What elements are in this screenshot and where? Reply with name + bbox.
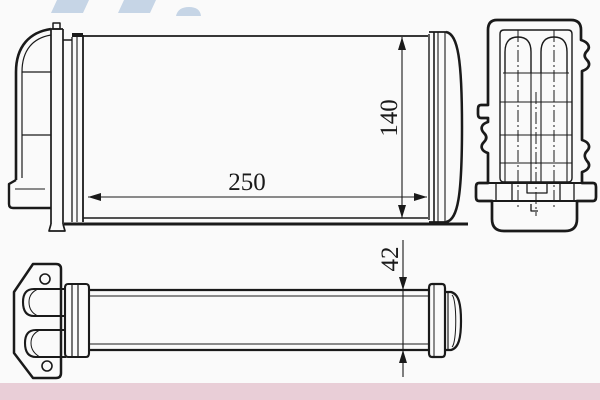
pipe-stub-inner-line (31, 330, 40, 357)
dimension-arrow (414, 193, 427, 201)
pipe-end-ring (429, 284, 445, 357)
end-view-tab-mark (531, 204, 538, 211)
tank-flange-strip (51, 29, 63, 224)
pipe-stub-inner-line (29, 289, 38, 316)
left-tank (9, 23, 83, 231)
inlet-flange-plate (14, 264, 61, 378)
pipe-collar (65, 284, 89, 357)
left-tank-foot (9, 180, 51, 208)
tank-end-view (476, 20, 596, 231)
left-tank-outline (16, 29, 51, 180)
pipe-end-cap-inner-curve (452, 295, 456, 347)
end-cap-curve (446, 32, 462, 222)
end-view-flange-notch (527, 183, 547, 193)
pipe-collar-line (72, 284, 78, 357)
dimension-42-label: 42 (377, 247, 404, 272)
right-end-cap (429, 32, 462, 222)
left-tank-inner-line (22, 35, 51, 178)
technical-drawing-page: 140 250 (0, 0, 600, 400)
dimension-42: 42 (377, 240, 407, 377)
core-body (64, 36, 468, 224)
flange-bolt-hole (40, 274, 50, 284)
footer-accent-bar (0, 383, 600, 400)
dimension-140: 140 (376, 37, 406, 218)
dimension-arrow (398, 205, 406, 218)
dimension-arrow (399, 277, 407, 290)
tank-flange-nub (53, 23, 60, 29)
dimension-140-label: 140 (376, 99, 403, 137)
pipe-body (89, 290, 429, 350)
end-view-flange-clip (496, 183, 574, 201)
dimension-250: 250 (88, 169, 427, 201)
dimension-250-label: 250 (228, 169, 266, 196)
watermark (51, 0, 201, 16)
dimension-arrow (398, 37, 406, 50)
pipe-assembly-view (14, 264, 461, 378)
dimension-arrow (88, 193, 101, 201)
watermark-shape (176, 7, 201, 16)
watermark-shape (51, 0, 89, 13)
heater-core-drawing: 140 250 (0, 0, 600, 400)
flange-bolt-hole (42, 361, 52, 371)
watermark-shape (118, 0, 156, 13)
dimension-arrow (399, 350, 407, 363)
tank-flange-taper (49, 224, 65, 231)
